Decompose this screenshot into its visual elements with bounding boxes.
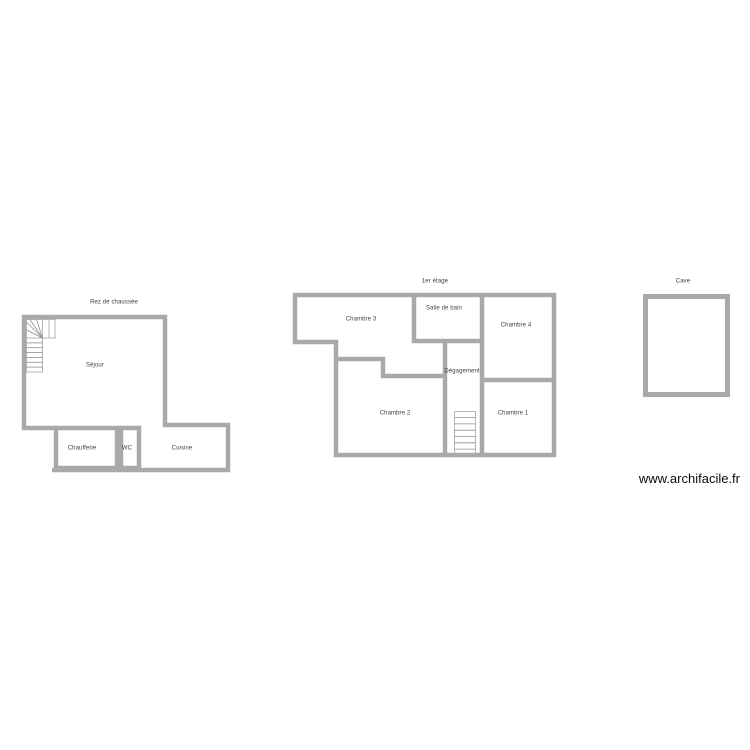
staircase-steps [27,320,43,368]
floorplan-canvas: Rez de chaussée Séjour Chaufferie WC Cui… [0,0,750,750]
floorplan-drawing [0,0,750,750]
room-label-salle-de-bain: Salle de bain [426,306,462,313]
room-label-sejour: Séjour [86,363,104,370]
first-floor-plan [293,293,556,457]
staircase-icon [27,320,56,373]
cellar-plan [646,297,728,395]
room-label-chambre4: Chambre 4 [501,323,532,330]
chambre2-top-wall [334,359,447,376]
cave-walls [646,297,728,395]
staircase-steps [455,418,476,450]
room-label-cuisine: Cuisine [172,446,193,453]
room-label-chambre3: Chambre 3 [346,317,377,324]
salle-de-bain-walls [414,293,484,341]
room-label-chambre1: Chambre 1 [498,411,529,418]
floor-title-first: 1er étage [422,279,448,286]
floor-title-ground: Rez de chaussée [90,300,138,307]
room-label-wc: WC [122,446,132,453]
room-label-chambre2: Chambre 2 [380,411,411,418]
floor-title-cave: Cave [676,279,690,286]
room-label-degagement: Dégagement [444,369,479,376]
watermark-text: www.archifacile.fr [639,471,740,486]
room-label-chaufferie: Chaufferie [68,446,97,453]
